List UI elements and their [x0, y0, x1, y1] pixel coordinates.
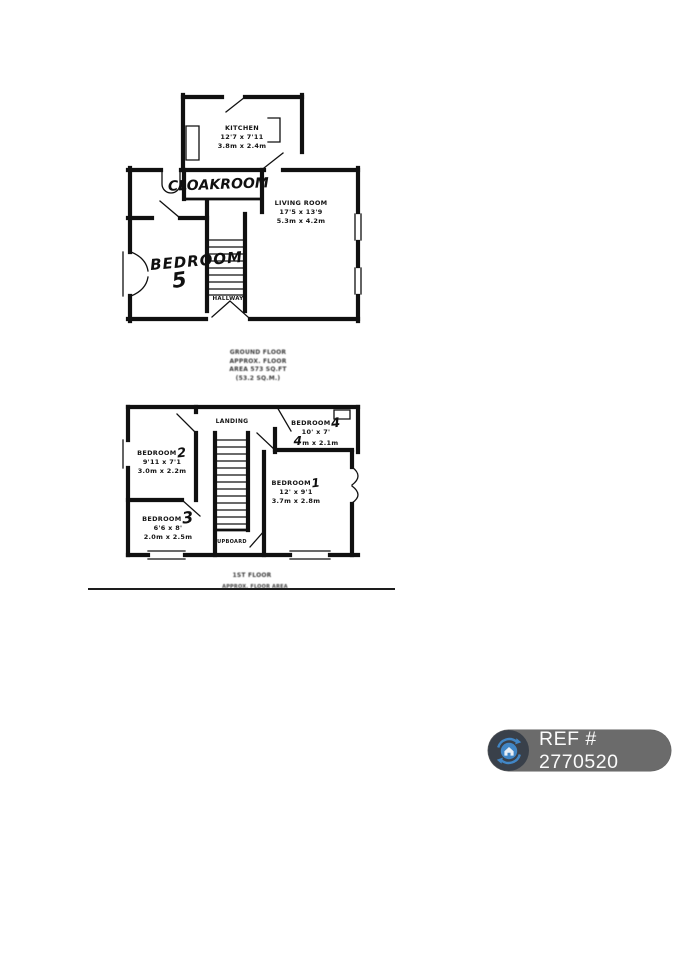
kitchen-label: KITCHEN 12'7 x 7'11 3.8m x 2.4m: [218, 124, 267, 151]
kitchen-door-swing: [226, 97, 245, 112]
bedroom4-metric-handwritten: 4: [294, 434, 303, 448]
bedroom5-number: 5: [170, 267, 188, 293]
kitchen-counter: [186, 126, 199, 160]
bedroom3-label: BEDROOM3 6'6 x 8' 2.0m x 2.5m: [142, 515, 194, 542]
bedroom2-number: 2: [177, 451, 187, 458]
ref-badge: REF # 2770520: [488, 730, 671, 771]
living-room-label: LIVING ROOM 17'5 x 13'9 5.3m x 4.2m: [275, 199, 328, 226]
floorplan-page: KITCHEN 12'7 x 7'11 3.8m x 2.4m LIVING R…: [0, 0, 683, 960]
hallway-label: HALLWAY: [212, 296, 243, 302]
bedroom2-label: BEDROOM2 9'11 x 7'1 3.0m x 2.2m: [137, 449, 187, 476]
bedroom1-window: [290, 551, 330, 559]
bedroom5-door-swing: [160, 201, 180, 218]
bedroom1-number: 1: [312, 480, 321, 487]
living-door-swing: [264, 153, 283, 168]
kitchen-appliance: [268, 118, 280, 142]
first-floor-caption-title: 1ST FLOOR: [232, 572, 271, 581]
first-stairs: [217, 440, 246, 524]
cupboard-label: CUPBOARD: [213, 539, 247, 545]
bedroom4-number: 4: [331, 421, 341, 428]
bedroom3-number: 3: [182, 514, 194, 521]
divider-rule: [88, 588, 395, 590]
floorplan-drawing: [0, 0, 683, 960]
landing-label: LANDING: [216, 418, 249, 425]
bedroom4-door-swing: [277, 407, 291, 431]
ref-number: REF # 2770520: [539, 730, 671, 771]
bedroom4-label: BEDROOM4 10' x 7' 4m x 2.1m: [291, 419, 341, 448]
bedroom1-label: BEDROOM1 12' x 9'1 3.7m x 2.8m: [271, 479, 320, 506]
house-sync-icon: [488, 730, 529, 771]
bedroom1-door-swing: [257, 433, 275, 450]
front-door-swing: [212, 301, 248, 317]
bedroom1-bay-window: [352, 467, 358, 503]
ground-floor-caption: GROUND FLOOR APPROX. FLOOR AREA 573 SQ.F…: [229, 349, 286, 383]
bedroom5-window: [123, 252, 148, 296]
bedroom3-window: [148, 551, 185, 559]
bedroom2-door-swing: [177, 414, 196, 433]
